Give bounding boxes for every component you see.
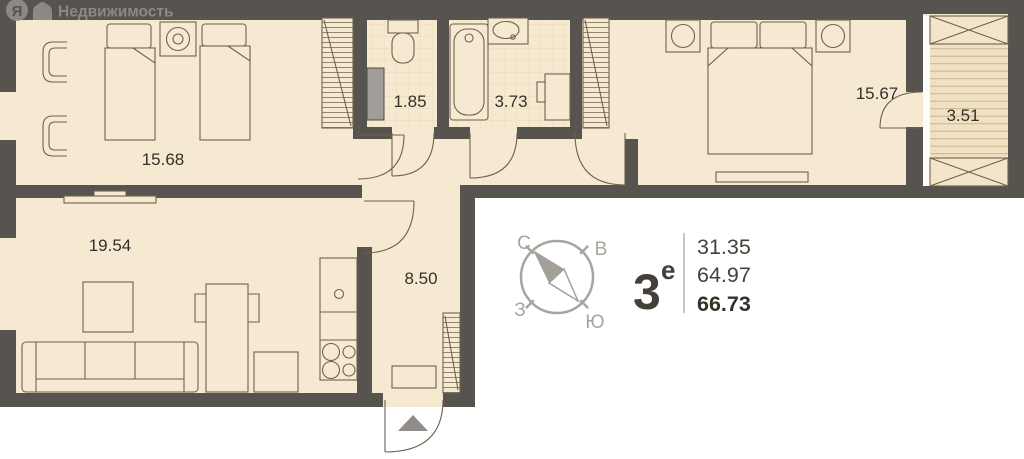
balcony-top-box (930, 16, 1008, 44)
balcony-bottom-box (930, 158, 1008, 186)
single-bed-icon (200, 24, 250, 140)
toilet-icon (388, 20, 418, 63)
area-value: 64.97 (697, 263, 751, 287)
nightstand-lamp-icon (666, 20, 700, 52)
wardrobe-icon (322, 18, 353, 128)
balcony-decking (930, 44, 1008, 158)
balcony-glazing (923, 16, 930, 186)
wardrobe-icon (583, 18, 609, 128)
double-bed-icon (708, 22, 812, 154)
apartment-type-suffix: е (661, 255, 675, 285)
room-area-label: 1.85 (393, 92, 426, 111)
compass-needle-north (533, 250, 564, 283)
room-area-label: 8.50 (404, 269, 437, 288)
kitchen-unit-icon (320, 258, 357, 380)
room-area-label: 19.54 (89, 236, 132, 255)
apartment-type: 3 (633, 264, 661, 320)
compass-south-label: Ю (585, 312, 604, 333)
side-table-icon (254, 352, 298, 392)
area-total-value: 66.73 (697, 292, 751, 316)
compass-west-label: З (514, 300, 525, 321)
coffee-table-icon (83, 282, 133, 332)
entrance-arrow-icon (398, 415, 428, 431)
room-area-label: 15.67 (856, 84, 899, 103)
floor-plan-svg: 15.68 1.85 3.73 15.67 3.51 19.54 8.50 С … (0, 0, 1024, 459)
room-area-label: 3.73 (494, 92, 527, 111)
area-value: 31.35 (697, 235, 751, 259)
logo-brand-text: Недвижимость (58, 4, 174, 21)
room-area-label: 15.68 (142, 150, 185, 169)
floor-plan-page: 15.68 1.85 3.73 15.67 3.51 19.54 8.50 С … (0, 0, 1024, 459)
single-bed-icon (105, 24, 155, 140)
compass-ticks (526, 246, 588, 308)
compass-east-label: В (595, 239, 608, 260)
logo-initial: Я (12, 3, 23, 20)
sink-icon (488, 18, 528, 44)
dresser-icon (716, 172, 808, 182)
entrance-door (385, 400, 443, 452)
nightstand-lamp-icon (816, 20, 850, 52)
compass-north-label: С (517, 233, 531, 254)
ventilation-shaft (367, 68, 384, 120)
room-area-label: 3.51 (946, 106, 979, 125)
nightstand-lamp-icon (160, 22, 196, 56)
apartment-info: 3 е 31.35 64.97 66.73 (633, 233, 751, 320)
wardrobe-icon (443, 313, 460, 393)
bathtub-icon (450, 24, 488, 120)
compass: С В З Ю (514, 233, 607, 333)
shoe-bench-icon (392, 366, 436, 388)
sofa-icon (22, 342, 198, 392)
